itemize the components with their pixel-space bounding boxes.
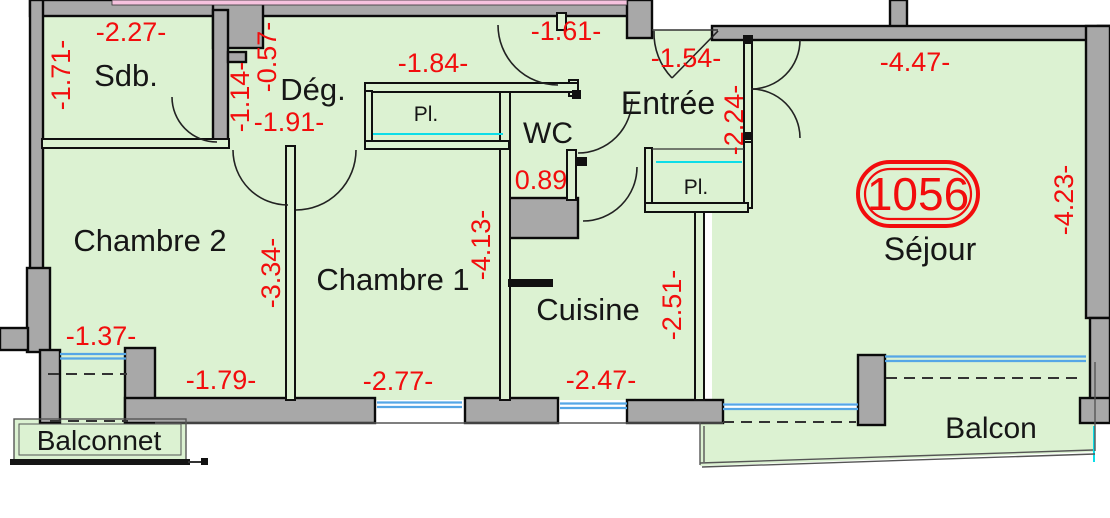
dim-entree-top-right: -1.54-: [651, 43, 722, 73]
chambre-divider-wall: [286, 146, 295, 400]
kitchen-counter-stub: [508, 279, 553, 287]
closet2-west-wall: [645, 148, 652, 208]
dim-deg-step: -0.57-: [252, 22, 282, 93]
dim-sdb-width: -2.27-: [96, 17, 167, 47]
closet1-west-wall: [365, 91, 372, 148]
dim-wc-width: 0.89: [515, 165, 568, 195]
dim-deg-bottom: -1.91-: [254, 107, 325, 137]
sdb-chambre2-wall: [42, 139, 229, 148]
bottom-sill-1: [465, 398, 558, 423]
window-sejour-left: [723, 405, 858, 410]
room-label-chambre1: Chambre 1: [316, 262, 469, 297]
room-label-cuisine: Cuisine: [536, 292, 639, 327]
dim-chambre1-width: -2.77-: [363, 366, 434, 396]
closet1-south-wall: [365, 141, 509, 149]
unit-number-badge: 1056: [858, 162, 978, 226]
chimney-stub: [890, 0, 907, 28]
closet2-south-wall: [645, 203, 748, 212]
room-label-sdb: Sdb.: [94, 58, 158, 93]
room-label-balconnet: Balconnet: [37, 425, 162, 456]
wc-east-wall: [567, 150, 576, 200]
closet-label-2: Pl.: [684, 176, 709, 199]
dim-entree-height: -2.24-: [719, 85, 749, 156]
right-wall: [1086, 26, 1110, 318]
dim-entree-top-left: -1.61-: [531, 16, 602, 46]
window-chambre1: [377, 403, 462, 408]
unit-number: 1056: [867, 168, 969, 220]
dim-chambre2-height: -3.34-: [256, 238, 286, 309]
cuisine-sejour-wall: [695, 208, 704, 400]
dim-chambre2-window: -1.37-: [66, 321, 137, 351]
balconnet-base: [10, 459, 190, 465]
dim-cuisine-height: -2.51-: [657, 270, 687, 341]
dim-deg-width: -1.84-: [398, 48, 469, 78]
room-label-chambre2: Chambre 2: [73, 223, 226, 258]
left-wall: [30, 0, 43, 270]
room-label-sejour: Séjour: [884, 231, 977, 267]
neighbor-unit-strip: [112, 0, 627, 5]
dim-chambre1-height: -4.13-: [466, 210, 496, 281]
dim-sdb-height: -1.71-: [46, 40, 76, 111]
floor-plan: 1056 Sdb. Dég. Entrée WC Chambre 2 Chamb…: [0, 0, 1110, 518]
room-label-degagement: Dég.: [280, 72, 345, 107]
sejour-top-wall: [712, 26, 1110, 40]
floor-plan-svg: 1056 Sdb. Dég. Entrée WC Chambre 2 Chamb…: [0, 0, 1110, 518]
dim-sejour-width: -4.47-: [880, 47, 951, 77]
room-label-balcon: Balcon: [945, 412, 1037, 445]
sejour-window-stub: [858, 355, 885, 425]
left-wall-protrusion: [0, 328, 28, 350]
room-label-entree: Entrée: [621, 85, 715, 121]
dim-chambre2-bottom: -1.79-: [186, 365, 257, 395]
dim-cuisine-width: -2.47-: [566, 365, 637, 395]
wc-slab: [505, 198, 578, 238]
room-label-wc: WC: [523, 117, 573, 150]
bottom-sill-2: [627, 400, 723, 423]
chambre1-east-wall: [500, 83, 510, 400]
entry-stub-wall: [627, 0, 652, 38]
dim-sejour-height: -4.23-: [1049, 165, 1079, 236]
closet-label-1: Pl.: [414, 103, 439, 126]
dim-deg-height: -1.14-: [225, 62, 255, 133]
window-cuisine: [560, 404, 627, 409]
